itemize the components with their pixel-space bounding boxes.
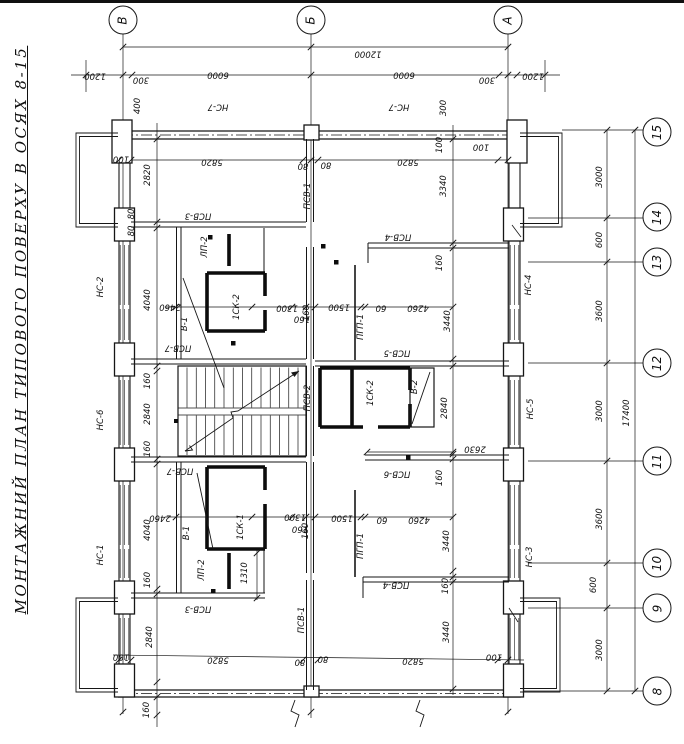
dimension-label: 160 [144, 373, 153, 389]
panel-label: В-1 [183, 526, 192, 540]
axis-bubble-Б: Б [297, 6, 326, 35]
panel-label: В-2 [411, 380, 420, 394]
panel-label: ПСВ-4 [383, 580, 410, 589]
drawing-sheet: МОНТАЖНИЙ ПЛАН ТИПОВОГО ПОВЕРХУ В ОСЯХ 8… [0, 0, 684, 744]
panel-label: ПСВ-3 [185, 604, 212, 613]
dimension-label: 3440 [443, 530, 452, 552]
dimension-label: 600 [590, 577, 599, 593]
dimension-label: 2840 [146, 626, 155, 648]
dimension-label: 2840 [144, 403, 153, 425]
dimension-label: 5820 [201, 157, 223, 166]
drawing-title: МОНТАЖНИЙ ПЛАН ТИПОВОГО ПОВЕРХУ В ОСЯХ 8… [12, 46, 30, 615]
dimension-label: 1310 [241, 562, 250, 584]
panel-label: НС-4 [525, 275, 534, 296]
panel-label: 1СК-2 [233, 294, 242, 320]
panel-label: НС-7 [208, 102, 229, 111]
panel-label: 1СК-2 [367, 380, 376, 406]
dimension-label: 3440 [443, 621, 452, 643]
dimension-label: 4040 [144, 519, 153, 541]
dimension-label: 60 [377, 515, 388, 524]
dimension-label: 1500 [328, 302, 350, 311]
dimension-label: 17400 [623, 399, 632, 426]
dimension-label: 100 [473, 142, 489, 151]
dimension-label: 80 [321, 160, 332, 169]
panel-label: НС-6 [97, 410, 106, 431]
dimension-label: 6000 [207, 70, 229, 79]
dimension-label: 1300 [284, 512, 306, 521]
dimension-label: 100 [113, 154, 129, 163]
panel-label: ПСВ-1 [304, 183, 313, 210]
dimension-label: 160 [442, 578, 451, 594]
panel-label: ПСВ-6 [384, 469, 411, 478]
dimension-label: 2630 [464, 444, 486, 453]
dimension-label: 400 [134, 98, 143, 114]
dimension-label: 3000 [596, 166, 605, 188]
annotation-overlay: МОНТАЖНИЙ ПЛАН ТИПОВОГО ПОВЕРХУ В ОСЯХ 8… [0, 0, 684, 744]
dimension-label: 1500 [331, 513, 353, 522]
dimension-label: 3000 [596, 639, 605, 661]
panel-label: ПСВ-7 [165, 343, 192, 352]
axis-bubble-В: В [109, 6, 138, 35]
dimension-label: 160 [436, 470, 445, 486]
dimension-label: 12000 [354, 49, 381, 58]
axis-bubble-12: 12 [643, 349, 672, 378]
dimension-label: 160 [302, 523, 311, 539]
dimension-label: 6000 [393, 70, 415, 79]
dimension-label: 300 [440, 100, 449, 116]
dimension-label: 600 [596, 232, 605, 248]
axis-bubble-9: 9 [643, 594, 672, 623]
panel-label: ПСВ-7 [167, 466, 194, 475]
dimension-label: 2460 [159, 302, 181, 311]
dimension-label: 4260 [408, 515, 430, 524]
dimension-label: 2840 [441, 397, 450, 419]
panel-label: ЛП-2 [198, 559, 207, 580]
axis-bubble-А: А [494, 6, 523, 35]
dimension-label: 80 [318, 654, 329, 663]
panel-label: 1СК-1 [237, 514, 246, 540]
dimension-label: 1200 [522, 71, 544, 80]
dimension-label: 100 [486, 652, 502, 661]
panel-label: ПСВ-1 [298, 607, 307, 634]
panel-label: В-1 [181, 317, 190, 331]
dimension-label: 160 [144, 572, 153, 588]
panel-label: ПГП-1 [357, 314, 366, 340]
dimension-label: 80 [295, 657, 306, 666]
dimension-label: 3340 [440, 175, 449, 197]
dimension-label: 2820 [144, 164, 153, 186]
panel-label: НС-2 [97, 277, 106, 298]
dimension-label: 5820 [207, 655, 229, 664]
dimension-label: 4260 [407, 303, 429, 312]
panel-label: ЛП-2 [201, 236, 210, 257]
dimension-label: 160 [303, 305, 312, 321]
panel-label: ПСВ-3 [185, 211, 212, 220]
dimension-label: 5820 [397, 157, 419, 166]
dimension-label: 3600 [596, 300, 605, 322]
dimension-label: 160 [143, 702, 152, 718]
panel-label: НС-1 [97, 545, 106, 566]
dimension-label: 80 [128, 226, 137, 237]
axis-bubble-11: 11 [643, 447, 672, 476]
dimension-label: 80 [128, 209, 137, 220]
dimension-label: 1300 [276, 303, 298, 312]
dimension-label: 80 [298, 161, 309, 170]
dimension-label: 160 [144, 441, 153, 457]
dimension-label: 160 [436, 255, 445, 271]
panel-label: НС-3 [526, 547, 535, 568]
dimension-label: 5820 [402, 656, 424, 665]
dimension-label: 2460 [149, 513, 171, 522]
dimension-label: 100 [436, 137, 445, 153]
axis-bubble-13: 13 [643, 248, 672, 277]
axis-bubble-8: 8 [643, 677, 672, 706]
axis-bubble-10: 10 [643, 549, 672, 578]
dimension-label: 3000 [596, 400, 605, 422]
panel-label: НС-5 [527, 399, 536, 420]
panel-label: ПСВ-4 [385, 232, 412, 241]
dimension-label: 1200 [84, 71, 106, 80]
panel-label: НС-7 [389, 102, 410, 111]
dimension-label: 3600 [596, 508, 605, 530]
panel-label: ПГП-1 [357, 533, 366, 559]
axis-bubble-15: 15 [643, 118, 672, 147]
panel-label: ПСВ-5 [384, 348, 411, 357]
dimension-label: 300 [479, 75, 495, 84]
panel-label: ПСВ-2 [304, 385, 313, 412]
dimension-label: 100 [113, 652, 129, 661]
dimension-label: 4040 [144, 289, 153, 311]
axis-bubble-14: 14 [643, 203, 672, 232]
dimension-label: 300 [133, 75, 149, 84]
dimension-label: 60 [376, 303, 387, 312]
dimension-label: 3440 [444, 310, 453, 332]
